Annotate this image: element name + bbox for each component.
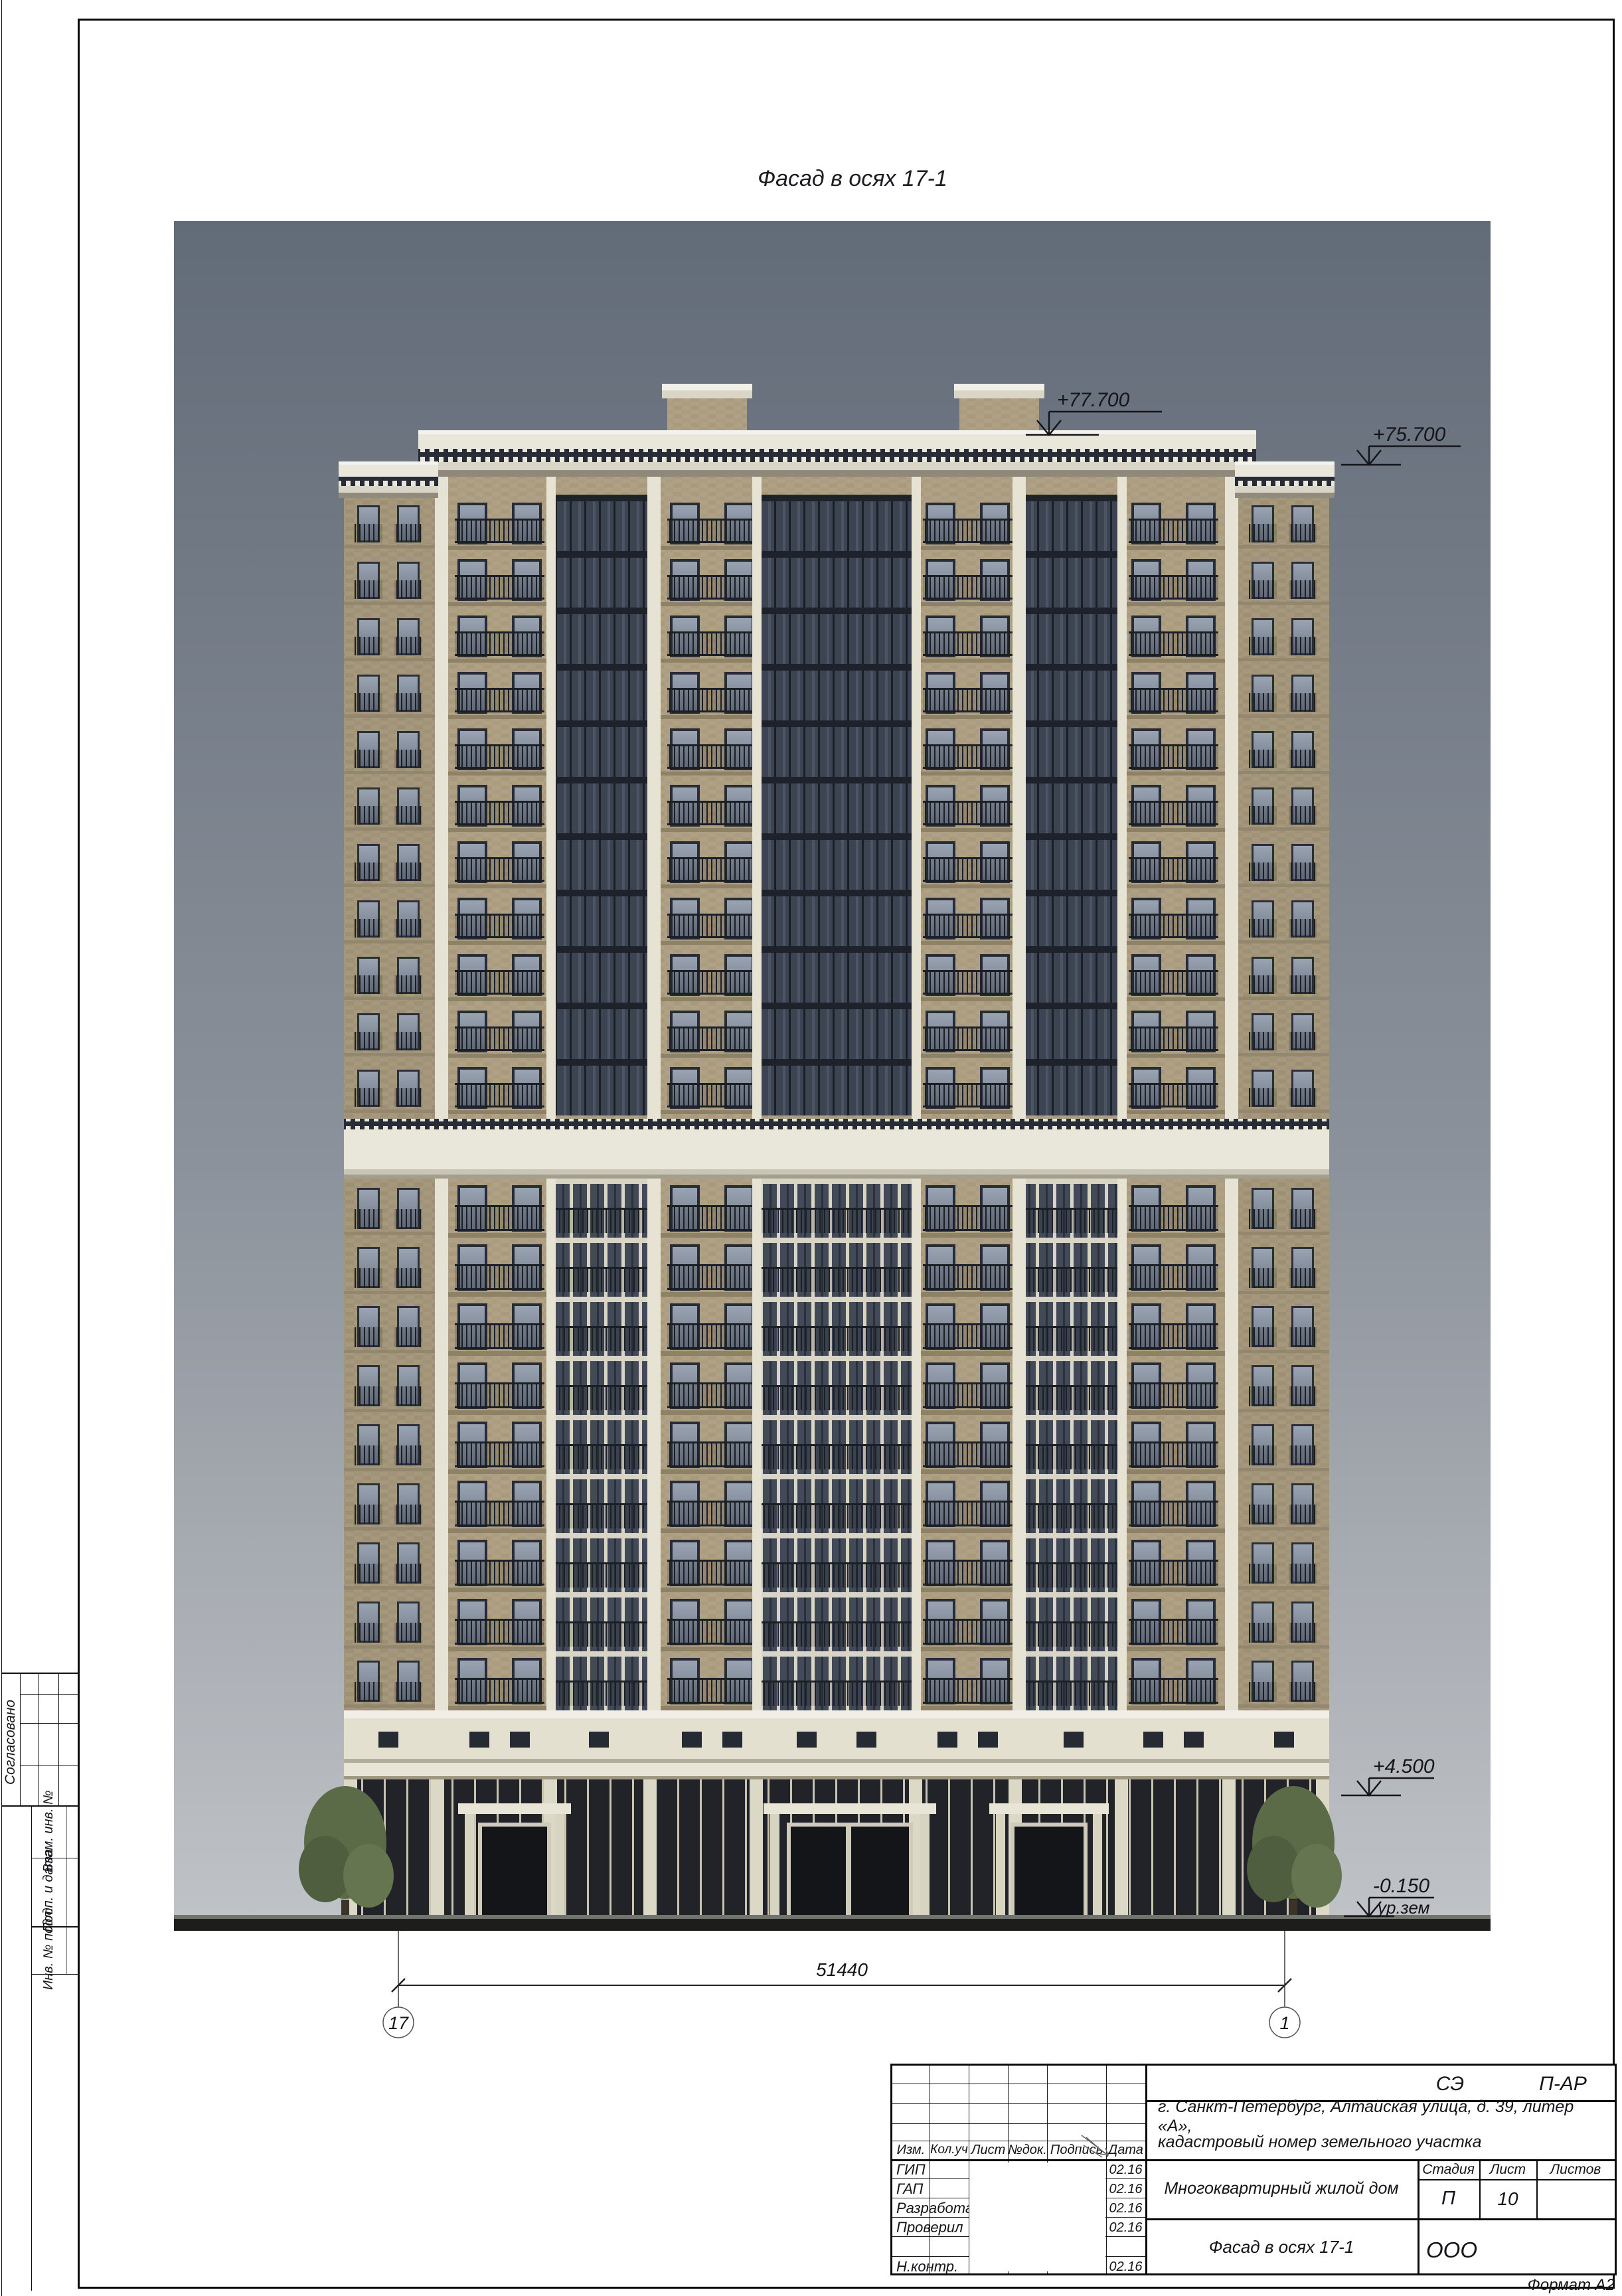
object-address-line1: г. Санкт-Петербург, Алтайская улица, д. …	[1158, 2105, 1609, 2128]
date-gap: 02.16	[1106, 2180, 1145, 2198]
axis-label-right: 1	[1279, 2013, 1289, 2033]
sheets-total	[1536, 2180, 1615, 2217]
elevation-value: -0.150	[1373, 1875, 1429, 1897]
sheet-title: Фасад в осях 17-1	[1145, 2220, 1418, 2273]
role-gip: ГИП	[896, 2161, 969, 2178]
date-nkontr: 02.16	[1106, 2258, 1145, 2275]
col-header-koluch: Кол.уч	[930, 2141, 969, 2159]
elevation-value: +4.500	[1373, 1756, 1435, 1777]
dimension-line: 51440 17 1	[383, 1931, 1300, 2038]
elevation-value: +75.700	[1373, 424, 1446, 446]
signature-scribble	[1078, 2132, 1125, 2162]
sheet-header: Лист	[1479, 2161, 1536, 2179]
project-name: Многоквартирный жилой дом	[1145, 2159, 1418, 2218]
doc-code-par: П-АР	[1510, 2071, 1616, 2097]
organization-name: ООО	[1426, 2235, 1612, 2265]
date-razrabotal: 02.16	[1106, 2200, 1145, 2217]
role-gap: ГАП	[896, 2180, 969, 2198]
col-header-list: Лист	[969, 2141, 1008, 2159]
facade-render: +77.700 +75.700 +4.500 -0.150 ур.зем 514…	[0, 0, 1622, 2296]
doc-code-se: СЭ	[1397, 2071, 1503, 2097]
object-address-line2: кадастровый номер земельного участка	[1158, 2131, 1609, 2153]
date-empty	[1106, 2238, 1145, 2255]
building-facade	[174, 384, 1491, 1931]
col-header-ndok: №док.	[1008, 2141, 1047, 2159]
title-block: Изм. Кол.уч Лист №док. Подпись Дата ГИП …	[890, 2064, 1617, 2275]
axis-label-left: 17	[388, 2013, 409, 2033]
drawing-sheet: Фасад в осях 17-1	[0, 0, 1622, 2296]
col-header-izm: Изм.	[892, 2141, 930, 2159]
stage-header: Стадия	[1418, 2161, 1479, 2179]
approved-stamp-label: Согласовано	[1, 1705, 21, 1785]
inv-podl-label: Инв. № подл.	[39, 1910, 58, 1990]
date-gip: 02.16	[1106, 2161, 1145, 2178]
sheet-number: 10	[1479, 2180, 1536, 2217]
stage-value: П	[1418, 2180, 1479, 2217]
dimension-value: 51440	[816, 1959, 868, 1980]
sheets-header: Листов	[1536, 2161, 1615, 2179]
redaction-box	[969, 2163, 1105, 2271]
elevation-value: +77.700	[1057, 389, 1130, 411]
format-note: Формат А2	[1481, 2276, 1615, 2295]
ground-level-label: ур.зем	[1376, 1898, 1430, 1918]
date-proveril: 02.16	[1106, 2219, 1145, 2236]
